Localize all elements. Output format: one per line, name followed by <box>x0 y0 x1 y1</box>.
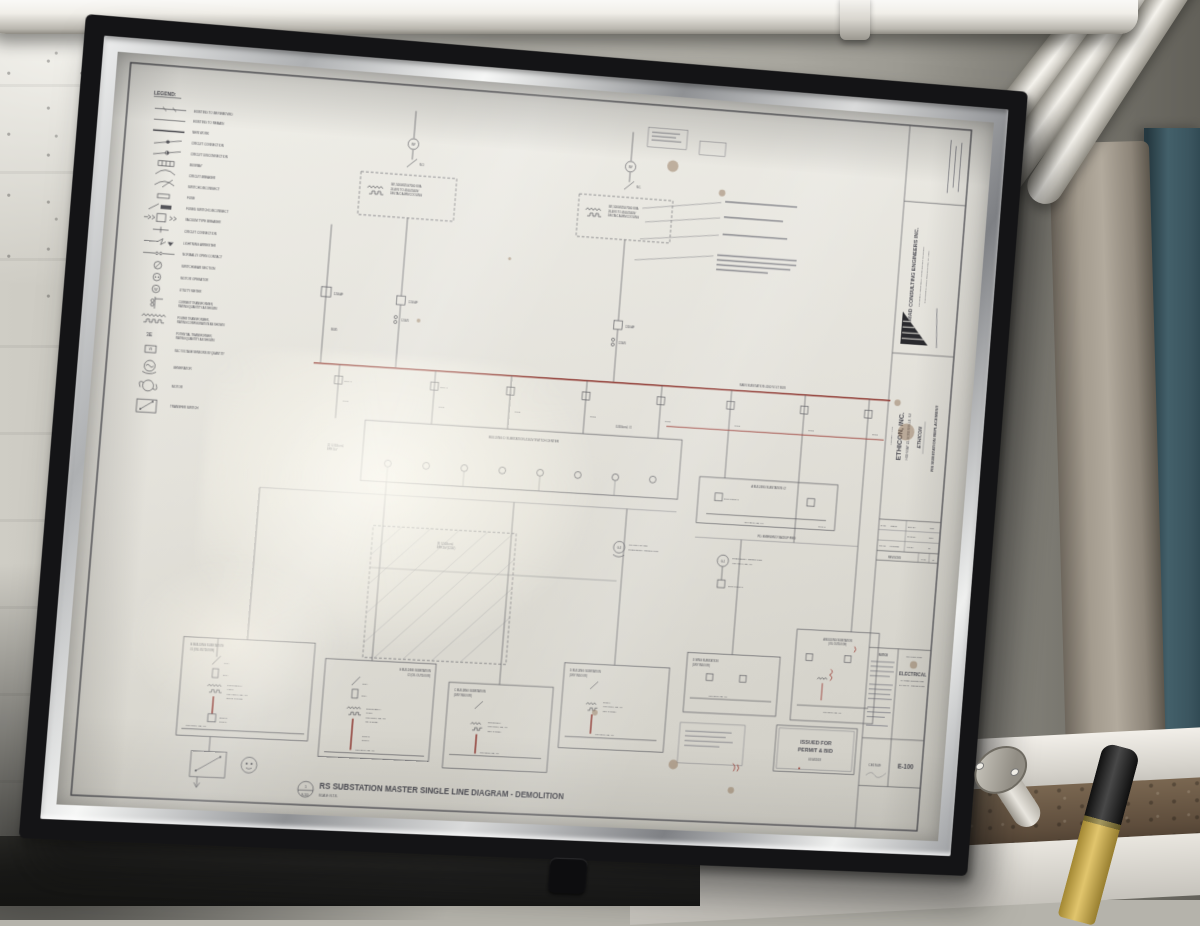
project-title-block: PROJECT TITLE ETHICON, INC. HIGHWAY 22, … <box>888 402 939 471</box>
legend-label: NORMALLY OPEN CONTACT <box>182 253 222 260</box>
tx-rating: (65°C RISE) <box>365 721 378 725</box>
meter-glyph: W <box>629 164 633 169</box>
legend-label: CIRCUIT CONNECTION <box>191 142 224 148</box>
substation-name: (DRY INDOOR) <box>454 693 472 698</box>
tx-rating: (150°C RISE) <box>602 710 616 714</box>
generator-3: G-3 GLYCOL HEATER EMERGENCY GENERATOR <box>613 541 659 559</box>
breaker-rating: 1200 AF <box>625 325 635 330</box>
red-secondary-line <box>350 719 353 750</box>
rev-by-label: BY <box>932 560 935 562</box>
scale-value: AS NOTED <box>889 545 900 548</box>
feeder-ct-label: 800/5 <box>872 434 878 437</box>
legend-symbol-existing-remain-icon <box>154 119 185 121</box>
annotation-leaders <box>634 194 801 275</box>
legend-symbol-fuse-icon <box>157 194 169 199</box>
fuse-rating: 300A <box>361 694 367 697</box>
legend-label: VACUUM TYPE BREAKER <box>185 218 221 225</box>
red-secondary-line <box>590 714 592 733</box>
date-value: 8/22/17 <box>891 525 899 527</box>
transfer-switch-icon <box>189 751 226 778</box>
bus-label: 480Y/277V, 3Ø, 4W <box>185 724 207 728</box>
legend-symbol-circuit-disconnection-icon <box>153 150 181 156</box>
red-pen-scribble <box>829 669 832 681</box>
notice-board-frame: TRIAD CONSULTING ENGINEERS INC. ENGINEER… <box>19 14 1028 876</box>
legend-label: FUSE <box>187 196 195 201</box>
issued-date: 01/04/2018 <box>808 757 822 761</box>
scale-label: SCALE <box>879 545 886 548</box>
engineer-firm-block: TRIAD CONSULTING ENGINEERS INC. ENGINEER… <box>900 227 946 349</box>
tx-rating: 480Y/277V, 3Ø, 4W <box>226 693 248 697</box>
generator-label: 480Y/277V, 3Ø, 4W <box>732 562 753 566</box>
legend-label: FUSED SWITCH DISCONNECT <box>186 207 229 214</box>
switch-state-label: N.O. <box>419 163 425 167</box>
job-number: CE17049 <box>869 763 882 767</box>
drw-label: DRW BY <box>908 526 917 528</box>
feeder-ct-label: 600/5 <box>808 430 814 433</box>
cable-tag: EPR 5kV <box>327 447 338 452</box>
drawing-title-3: DIAGRAM - DEMOLITION <box>899 684 925 688</box>
issued-line-1: ISSUED FOR <box>800 740 832 747</box>
substation-a1: A BUILDING SUBSTATION (OIL OUTDOOR) 480Y… <box>790 629 879 724</box>
substation-name: (DRY INDOOR) <box>692 663 710 668</box>
legend-label: TRANSFER SWITCH <box>170 405 199 411</box>
switch-center-label: BUILDING D SUBSTATION 4160V SWITCH CENTE… <box>489 436 560 444</box>
bus-feeders: 1200 AF 600/5 1200 AF 600/5 600/5 600/5 … <box>317 364 887 633</box>
substation-name: C BUILDING SUBSTATION <box>454 688 486 693</box>
legend-label: CIRCUIT DISCONNECTION <box>190 153 227 160</box>
left-tie-feeder: 1200 AF 800/5 <box>316 224 349 364</box>
sheet-footer: 1 E-100 RS SUBSTATION MASTER SINGLE LINE… <box>297 781 564 808</box>
main-breaker-1 <box>396 296 405 305</box>
substation-name: (DRY INDOOR) <box>569 673 587 678</box>
red-tie-line <box>666 426 883 440</box>
ct-rating: 800/5 <box>331 327 338 331</box>
drawing-title-1: ELECTRICAL <box>899 672 927 679</box>
red-pen-marks <box>732 641 856 776</box>
legend-label: S&C VOLTAGE SENSORS W/ QUANTITY <box>174 349 224 356</box>
bus-label: 480Y/277V, 3Ø, 4W <box>355 750 375 753</box>
feeder-ct-label: 600/5 <box>438 406 445 409</box>
date-label: DATE <box>881 524 887 527</box>
substation-name: D WING SUBSTATION <box>693 658 719 663</box>
tx-rating: 1000/1150kVA <box>227 684 243 688</box>
legend-symbol-transfer-switch-icon <box>136 399 157 413</box>
issued-line-2: PERMIT & BID <box>798 747 833 754</box>
top-detail-box-2 <box>699 141 726 156</box>
legend-symbol-circuit-connection2-icon <box>153 226 169 233</box>
drawing-title-label: DRAWING TITLE <box>906 655 922 659</box>
legend-label: SWITCHGEAR SECTION <box>181 265 215 271</box>
tx-rating: 4160V <box>227 688 235 691</box>
app-label: APP BY <box>906 546 914 549</box>
tx-rating: (55/65°C RISE) <box>226 697 243 701</box>
legend-symbol-current-transformer-icon <box>150 296 163 309</box>
sheet-title: RS SUBSTATION MASTER SINGLE LINE DIAGRAM… <box>319 782 564 801</box>
legend-symbol-power-transformer-icon <box>141 314 165 323</box>
rev-date-label: DATE <box>921 558 926 561</box>
drw-value: MTB <box>930 528 935 530</box>
feeder-ct-label: 600/5 <box>665 420 671 423</box>
legend-symbol-generator-icon <box>142 360 157 374</box>
substation-g2: G BUILDING SUBSTATION #2 (OIL OUTDOOR) 6… <box>318 658 436 761</box>
tx-rating: 1500/1725kVA <box>366 707 382 711</box>
notice-block: NOTICE <box>866 652 895 726</box>
breaker-rating: 2000AS <box>219 716 227 719</box>
chkd-label: CHKD BY <box>907 537 916 539</box>
legend-symbol-circuit-breaker-icon <box>155 169 175 175</box>
legend-symbol-circuit-connection-icon <box>154 139 182 145</box>
breaker-rating: 3000AS <box>362 735 370 738</box>
legend-symbol-no-contact-icon <box>143 251 175 256</box>
substation-c: C BUILDING SUBSTATION (DRY INDOOR) 750/1… <box>442 682 553 772</box>
sheet-scale: SCALE: N.T.S. <box>318 794 337 799</box>
firm-address: 2740 ROUTE 10 WEST, MORRIS PLAINS, N.J. … <box>924 250 931 303</box>
legend-label: MOTOR OPERATOR <box>180 277 208 283</box>
legend-symbol-motor-icon <box>139 380 158 392</box>
firm-triangle-logo-icon <box>900 312 930 346</box>
substation-name: #1 (OIL OUTDOOR) <box>190 647 215 652</box>
legend-label: SWITCH DISCONNECT <box>188 185 220 191</box>
signature-squiggle <box>866 772 886 778</box>
substation-name: (OIL OUTDOOR) <box>828 642 847 647</box>
project-name: RS SUBSTATION REPLACEMENT <box>930 405 940 472</box>
utility-feed-1: W N.O. 3Ø, 5000/6250/7000 KVA 26.4KV TO … <box>346 107 462 371</box>
aluminum-inner-frame: TRIAD CONSULTING ENGINEERS INC. ENGINEER… <box>40 36 1008 857</box>
paper-stains <box>380 142 955 802</box>
substation-name: G BUILDING SUBSTATION <box>399 668 431 674</box>
switch-rating: 600A <box>224 662 230 665</box>
top-detail-box <box>647 128 688 150</box>
substation-g1: G BUILDING SUBSTATION #1 (OIL OUTDOOR) 6… <box>176 636 315 741</box>
cable-tag: 3-350kcmil, #1 <box>615 425 632 430</box>
legend-symbol-existing-removed-icon <box>155 106 187 112</box>
gray-conduit-column <box>1049 141 1167 794</box>
tx-rating: 750/1000kVA <box>488 721 502 725</box>
legend-label: NEW WORK <box>192 131 209 136</box>
legend-label: CIRCUIT BREAKER <box>189 174 216 180</box>
legend-symbol-switch-disconnect-icon <box>154 179 174 188</box>
detail-sheet: E-100 <box>302 793 310 797</box>
feeder-ct-label: 600/5 <box>590 416 596 419</box>
feeder-ct-label: 600/5 <box>514 411 521 414</box>
detail-number: 1 <box>305 785 307 789</box>
breaker-rating: 2000AS/2000AT <box>728 585 744 589</box>
voltage-sensor-glyph: VS <box>149 347 153 351</box>
firm-name: TRIAD CONSULTING ENGINEERS INC. <box>907 227 920 325</box>
red-secondary-line <box>475 734 477 753</box>
red-secondary-line <box>821 683 822 700</box>
legend-symbol-switchgear-section-icon <box>154 261 162 269</box>
generator-tag: G-1 <box>721 560 726 564</box>
ct-rating: 1200/5 <box>401 318 409 322</box>
fuse-rating: 200A <box>223 674 229 677</box>
switch-state-label: N.C. <box>636 186 641 190</box>
legend-label: BUSWAY <box>189 163 202 168</box>
app-value: RL <box>928 549 931 551</box>
revisions-label: REVISIONS <box>888 555 901 560</box>
main-4160v-bus <box>314 363 891 401</box>
interconnect-lines <box>245 475 861 702</box>
tx-rating: (150°C RISE) <box>487 730 501 734</box>
pipe-coupler <box>840 0 870 40</box>
breaker-rating: 3000AT <box>362 739 370 742</box>
tx-rating: 4160V <box>366 712 373 715</box>
legend-symbol-lightning-arrester-icon <box>144 237 174 246</box>
legend-symbol-vacuum-breaker-icon <box>144 213 177 223</box>
legend: LEGEND: EXISTING TO BE REMOVED EXISTING … <box>128 90 245 416</box>
breaker-rating: 1600AT <box>219 720 227 723</box>
bus-label: 480Y/277V, 3Ø, 4W <box>595 734 615 737</box>
schematic: W N.O. 3Ø, 5000/6250/7000 KVA 26.4KV TO … <box>172 94 957 818</box>
issued-for-stamp: ISSUED FOR PERMIT & BID 01/04/2018 <box>773 725 857 775</box>
substation-a2: A BUILDING SUBSTATION #2 2000AS/2000AT 4… <box>696 477 838 531</box>
breaker-rating: 1200 AF <box>334 292 344 297</box>
notice-label: NOTICE <box>879 653 888 657</box>
bus-label: 480Y/277V, 3Ø, 4W <box>480 752 500 755</box>
substation-name: A BUILDING SUBSTATION <box>823 637 852 642</box>
substation-name: #2 (OIL OUTDOOR) <box>407 673 431 678</box>
legend-label: EXISTING TO REMAIN <box>193 120 224 126</box>
bus-label: 480Y/277V, 3Ø, 4W <box>744 521 764 525</box>
aux-detail-box <box>677 722 745 765</box>
ct-rating: 1200/5 <box>618 341 626 345</box>
frame-latch <box>547 857 587 894</box>
potential-transformer-glyph: 3E <box>146 332 153 338</box>
pd-feed-label: P.D. EMERGENCY BACKUP FEED <box>758 535 796 541</box>
generator-tag: G-3 <box>617 546 622 550</box>
drawing-title-2: MASTER SINGLE LINE <box>901 679 925 683</box>
switch-center: BUILDING D SUBSTATION 4160V SWITCH CENTE… <box>360 420 682 499</box>
substation-dm: D BUILDING SUBSTATION (DRY INDOOR) 500kV… <box>558 663 670 753</box>
project-title-label: PROJECT TITLE <box>890 426 894 445</box>
feeder-breaker-label: 1200 AF <box>344 380 353 384</box>
substation-dw: D WING SUBSTATION (DRY INDOOR) 480Y/277V… <box>683 652 780 716</box>
bus-label: 480Y/277V, 3Ø, 4W <box>708 695 728 698</box>
feeder-breaker-label: 1200 AF <box>440 387 449 390</box>
generator-label: GLYCOL HEATER <box>629 544 648 548</box>
swgr-tag: SWG-2 <box>818 525 826 528</box>
legend-label: UTILITY METER <box>179 288 201 293</box>
red-secondary-line <box>212 696 213 714</box>
legend-label: EXISTING TO BE REMOVED <box>194 109 233 116</box>
sheet-number: E-100 <box>897 763 914 770</box>
motor-icon <box>241 757 258 773</box>
legend-symbol-busway-icon <box>158 161 174 167</box>
tx-rating: 500kVA <box>603 701 611 704</box>
switch-rating: 600A <box>362 683 368 686</box>
substation-name: A BUILDING SUBSTATION #2 <box>751 485 786 491</box>
chkd-value: NCC <box>929 538 934 540</box>
down-arrow-icon <box>193 777 200 788</box>
corner-note-lines <box>947 140 963 194</box>
utility-meter-glyph: W <box>154 287 158 291</box>
single-line-diagram-sheet: TRIAD CONSULTING ENGINEERS INC. ENGINEER… <box>56 52 994 842</box>
legend-symbol-motor-operator-icon <box>153 273 161 281</box>
legend-symbol-fused-switch-icon <box>149 203 172 211</box>
main-breaker-2 <box>613 320 622 329</box>
feeder-ct-label: 600/5 <box>734 425 740 428</box>
transfer-switch-group <box>188 736 259 790</box>
meter-glyph: W <box>411 142 415 147</box>
legend-label: GENERATOR <box>173 365 192 370</box>
generator-label: EMERGENCY GENERATOR <box>628 548 658 553</box>
legend-label: CIRCUIT CONNECTION <box>184 229 217 235</box>
tx-rating: 480Y/277V, 3Ø, 4W <box>603 706 624 710</box>
breaker-rating: 1200 AF <box>408 300 418 305</box>
main-bus-label: MAIN SUBSTATION 4160 VOLT BUS <box>740 383 786 390</box>
legend-label: MOTOR <box>171 385 182 390</box>
tx-rating: 480Y/277V, 3Ø, 4W <box>487 725 508 729</box>
legend-label: LIGHTNING ARRESTER <box>183 241 216 247</box>
tx-rating: 480Y/277V, 3Ø, 4W <box>365 716 386 720</box>
utility-feed-2: W N.C. 3Ø, 5000/6250/7000 KVA 26.4KV TO … <box>565 128 678 385</box>
feeder-ct-label: 600/5 <box>342 400 349 403</box>
client-logo: ETHICON <box>917 426 924 448</box>
legend-symbol-new-work-icon <box>153 130 184 132</box>
bus-label: 480Y/277V, 3Ø, 4W <box>823 712 842 715</box>
breaker-rating: 2000AS/2000AT <box>724 497 740 501</box>
board-glass: TRIAD CONSULTING ENGINEERS INC. ENGINEER… <box>56 52 994 842</box>
